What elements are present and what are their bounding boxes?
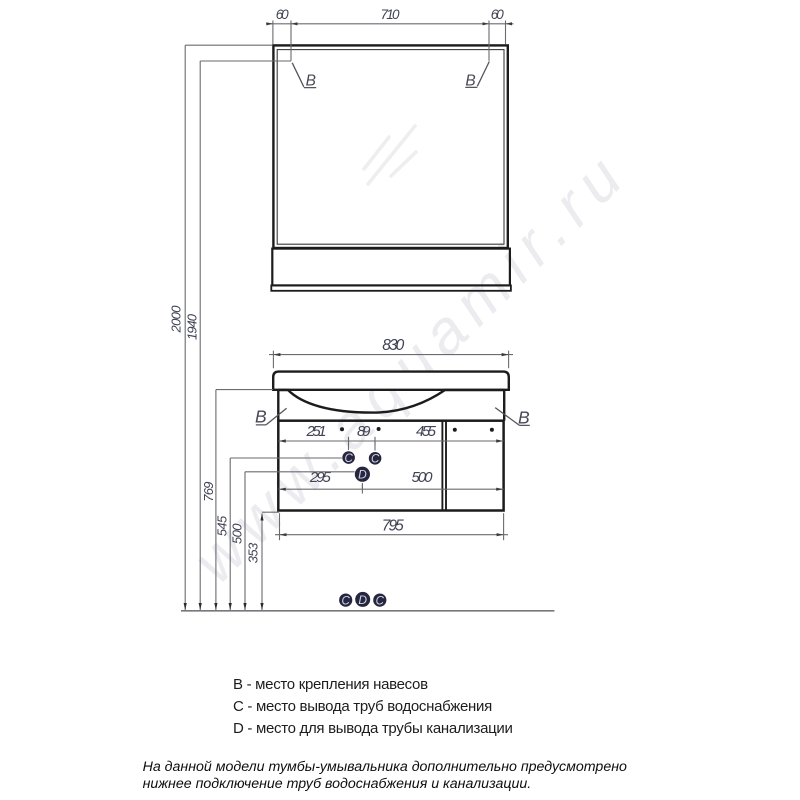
svg-text:C: C xyxy=(371,454,380,466)
svg-text:C: C xyxy=(344,453,353,465)
svg-text:B: B xyxy=(255,406,267,426)
svg-text:нижнее подключение труб водосн: нижнее подключение труб водоснабжения и … xyxy=(143,776,532,792)
svg-text:60: 60 xyxy=(276,7,289,22)
svg-text:B: B xyxy=(306,73,316,90)
svg-text:B: B xyxy=(465,73,475,90)
svg-text:D: D xyxy=(358,468,367,482)
svg-text:710: 710 xyxy=(381,7,400,22)
svg-text:D - место для вывода трубы кан: D - место для вывода трубы канализации xyxy=(233,720,513,737)
svg-text:795: 795 xyxy=(382,518,404,535)
svg-text:353: 353 xyxy=(246,542,261,563)
svg-text:1940: 1940 xyxy=(185,313,200,340)
svg-text:C: C xyxy=(376,595,385,607)
svg-text:B - место крепления навесов: B - место крепления навесов xyxy=(233,676,428,693)
svg-text:455: 455 xyxy=(416,423,437,440)
svg-text:251: 251 xyxy=(306,423,327,440)
svg-text:D: D xyxy=(358,593,367,607)
svg-text:C: C xyxy=(342,595,351,607)
svg-text:545: 545 xyxy=(215,515,230,536)
svg-text:89: 89 xyxy=(357,423,371,440)
svg-text:769: 769 xyxy=(201,482,216,502)
svg-text:500: 500 xyxy=(230,523,245,544)
svg-text:60: 60 xyxy=(491,7,504,22)
svg-text:На данной модели тумбы-умываль: На данной модели тумбы-умывальника допол… xyxy=(143,759,627,775)
svg-text:500: 500 xyxy=(412,469,434,486)
svg-text:C - место вывода труб водоснаб: C - место вывода труб водоснабжения xyxy=(233,698,492,715)
svg-text:B: B xyxy=(518,408,530,428)
svg-text:2000: 2000 xyxy=(169,305,184,334)
svg-text:830: 830 xyxy=(382,337,404,354)
